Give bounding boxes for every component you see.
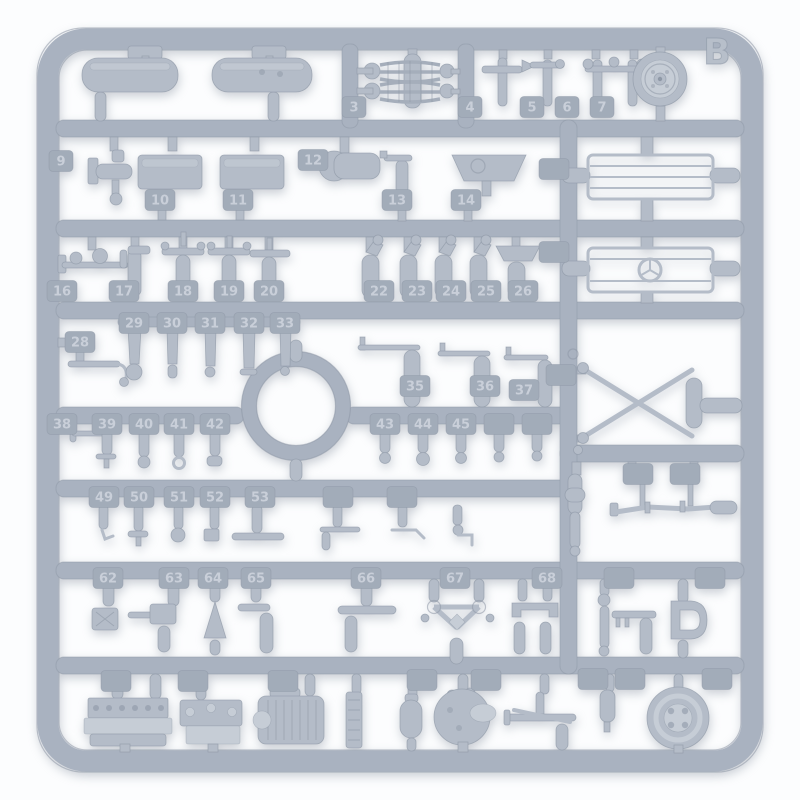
rail-2 xyxy=(56,220,744,237)
svg-text:28: 28 xyxy=(71,336,89,351)
svg-text:68: 68 xyxy=(538,572,556,587)
part-number-tag: 4 xyxy=(458,97,482,118)
svg-text:19: 19 xyxy=(220,285,238,300)
part-number-tag xyxy=(670,464,700,485)
svg-text:7: 7 xyxy=(597,101,606,116)
part-number-tag: 10 xyxy=(145,190,175,211)
part-number-tag: 32 xyxy=(234,313,264,334)
svg-text:51: 51 xyxy=(170,491,188,506)
part-number-tag xyxy=(101,671,131,692)
svg-text:63: 63 xyxy=(165,572,183,587)
svg-text:9: 9 xyxy=(56,155,65,170)
svg-text:41: 41 xyxy=(170,418,188,433)
part-number-tag: 50 xyxy=(124,487,154,508)
part-number-tag xyxy=(604,568,634,589)
part-number-tag: 13 xyxy=(382,190,412,211)
part-number-tag xyxy=(546,365,576,386)
part-number-tag: 14 xyxy=(451,190,481,211)
part-number-tag: 53 xyxy=(245,487,275,508)
svg-text:17: 17 xyxy=(115,285,133,300)
part-number-tag: 51 xyxy=(164,487,194,508)
svg-text:35: 35 xyxy=(406,380,424,395)
part-number-tag xyxy=(702,669,732,690)
part-number-tag: 30 xyxy=(157,313,187,334)
rail-vertical-inner xyxy=(560,120,577,674)
svg-text:6: 6 xyxy=(562,101,571,116)
part-number-tag: 38 xyxy=(47,414,77,435)
svg-text:31: 31 xyxy=(201,317,219,332)
sprue-letter-label: B xyxy=(703,32,730,73)
fuel-tank-part-2 xyxy=(212,58,312,92)
svg-text:20: 20 xyxy=(260,285,278,300)
svg-text:37: 37 xyxy=(515,384,533,399)
svg-text:62: 62 xyxy=(99,572,117,587)
road-wheel-part xyxy=(633,52,687,106)
part-number-tag: 68 xyxy=(532,568,562,589)
part-number-tag: 43 xyxy=(370,414,400,435)
part-number-tag: 25 xyxy=(471,281,501,302)
part-number-tag xyxy=(178,671,208,692)
part-number-tag xyxy=(484,414,514,435)
part-number-tag: 7 xyxy=(590,97,614,118)
part-number-tag xyxy=(323,487,353,508)
part-number-tag: 3 xyxy=(342,97,366,118)
svg-text:49: 49 xyxy=(95,491,113,506)
svg-text:23: 23 xyxy=(408,285,426,300)
part-number-tag: 17 xyxy=(109,281,139,302)
part-number-tag: 49 xyxy=(89,487,119,508)
svg-text:52: 52 xyxy=(206,491,224,506)
part-number-tag: 67 xyxy=(440,568,470,589)
svg-text:33: 33 xyxy=(276,317,294,332)
part-number-tag: 33 xyxy=(270,313,300,334)
part-number-tag: 23 xyxy=(402,281,432,302)
sprue-photo-svg: 3456791011121314161718192022232425262829… xyxy=(0,0,800,800)
part-number-tag: 5 xyxy=(520,97,544,118)
part-number-tag: 37 xyxy=(509,380,539,401)
part-number-tag xyxy=(695,568,725,589)
part-number-tag xyxy=(539,242,569,263)
svg-text:12: 12 xyxy=(304,154,322,169)
part-number-tag: 66 xyxy=(351,568,381,589)
part-number-tag: 24 xyxy=(436,281,466,302)
svg-text:36: 36 xyxy=(476,380,494,395)
taper-pin-part-31 xyxy=(205,328,216,377)
part-number-tag: 52 xyxy=(200,487,230,508)
part-number-tag: 20 xyxy=(254,281,284,302)
svg-text:65: 65 xyxy=(247,572,265,587)
svg-text:11: 11 xyxy=(229,194,247,209)
svg-text:18: 18 xyxy=(174,285,192,300)
svg-text:4: 4 xyxy=(465,101,474,116)
svg-text:38: 38 xyxy=(53,418,71,433)
svg-text:26: 26 xyxy=(514,285,532,300)
part-number-tag xyxy=(539,159,569,180)
svg-text:22: 22 xyxy=(370,285,388,300)
box-part-10 xyxy=(138,155,202,189)
part-number-tag: 18 xyxy=(168,281,198,302)
svg-text:3: 3 xyxy=(349,101,358,116)
svg-text:10: 10 xyxy=(151,194,169,209)
svg-text:45: 45 xyxy=(452,418,470,433)
fuel-tank-part-1 xyxy=(82,58,178,92)
part-number-tag: 16 xyxy=(47,281,77,302)
box-part-11 xyxy=(220,155,284,189)
part-number-tag xyxy=(623,464,653,485)
part-number-tag: 44 xyxy=(408,414,438,435)
photo-of-model-kit-sprue: 3456791011121314161718192022232425262829… xyxy=(0,0,800,800)
rail-right-column xyxy=(560,445,744,462)
part-number-tag: 12 xyxy=(298,150,328,171)
part-number-tag: 6 xyxy=(555,97,579,118)
part-number-tag xyxy=(387,487,417,508)
svg-text:40: 40 xyxy=(135,418,153,433)
part-number-tag: 41 xyxy=(164,414,194,435)
part-number-tag: 26 xyxy=(508,281,538,302)
part-number-tag xyxy=(578,669,608,690)
part-number-tag: 62 xyxy=(93,568,123,589)
svg-text:53: 53 xyxy=(251,491,269,506)
svg-text:50: 50 xyxy=(130,491,148,506)
part-number-tag: 45 xyxy=(446,414,476,435)
knob-rod-part xyxy=(598,579,610,656)
part-number-tag: 64 xyxy=(198,568,228,589)
part-number-tag: 40 xyxy=(129,414,159,435)
part-number-tag: 39 xyxy=(92,414,122,435)
part-number-tag: 42 xyxy=(200,414,230,435)
part-number-tag: 65 xyxy=(241,568,271,589)
svg-text:42: 42 xyxy=(206,418,224,433)
part-number-tag: 19 xyxy=(214,281,244,302)
svg-text:30: 30 xyxy=(163,317,181,332)
svg-text:32: 32 xyxy=(240,317,258,332)
svg-text:66: 66 xyxy=(357,572,375,587)
svg-text:25: 25 xyxy=(477,285,495,300)
part-number-tag: 31 xyxy=(195,313,225,334)
part-number-tag xyxy=(471,670,501,691)
svg-text:16: 16 xyxy=(53,285,71,300)
svg-text:14: 14 xyxy=(457,194,475,209)
part-number-tag xyxy=(615,669,645,690)
rail-1 xyxy=(56,120,744,137)
svg-text:13: 13 xyxy=(388,194,406,209)
svg-text:44: 44 xyxy=(414,418,432,433)
svg-text:5: 5 xyxy=(527,101,536,116)
part-number-tag: 9 xyxy=(49,151,73,172)
part-number-tag: 22 xyxy=(364,281,394,302)
svg-text:64: 64 xyxy=(204,572,222,587)
part-number-tag: 36 xyxy=(470,376,500,397)
part-number-tag xyxy=(268,671,298,692)
svg-text:24: 24 xyxy=(442,285,460,300)
part-number-tag: 35 xyxy=(400,376,430,397)
part-number-tag xyxy=(407,670,437,691)
taper-pin-part-30 xyxy=(167,328,178,378)
part-number-tag: 29 xyxy=(119,313,149,334)
part-number-tag: 63 xyxy=(159,568,189,589)
part-number-tag: 28 xyxy=(65,332,95,353)
svg-text:29: 29 xyxy=(125,317,143,332)
part-number-tag: 11 xyxy=(223,190,253,211)
svg-text:43: 43 xyxy=(376,418,394,433)
svg-text:67: 67 xyxy=(446,572,464,587)
part-number-tag xyxy=(522,414,552,435)
svg-text:39: 39 xyxy=(98,418,116,433)
